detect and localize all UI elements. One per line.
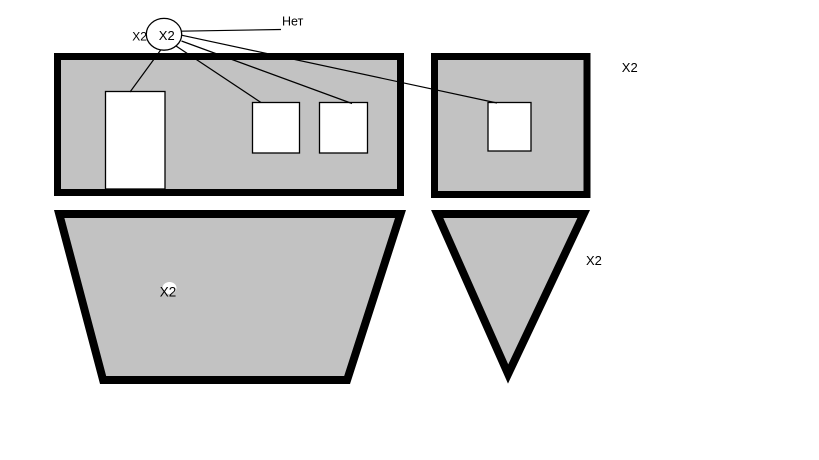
svg-text:X2: X2 <box>159 28 175 43</box>
svg-text:X2: X2 <box>160 285 177 300</box>
svg-text:X2: X2 <box>586 253 602 268</box>
svg-text:Нет: Нет <box>282 14 304 28</box>
svg-text:X2: X2 <box>132 29 147 43</box>
svg-text:X2: X2 <box>622 60 638 75</box>
